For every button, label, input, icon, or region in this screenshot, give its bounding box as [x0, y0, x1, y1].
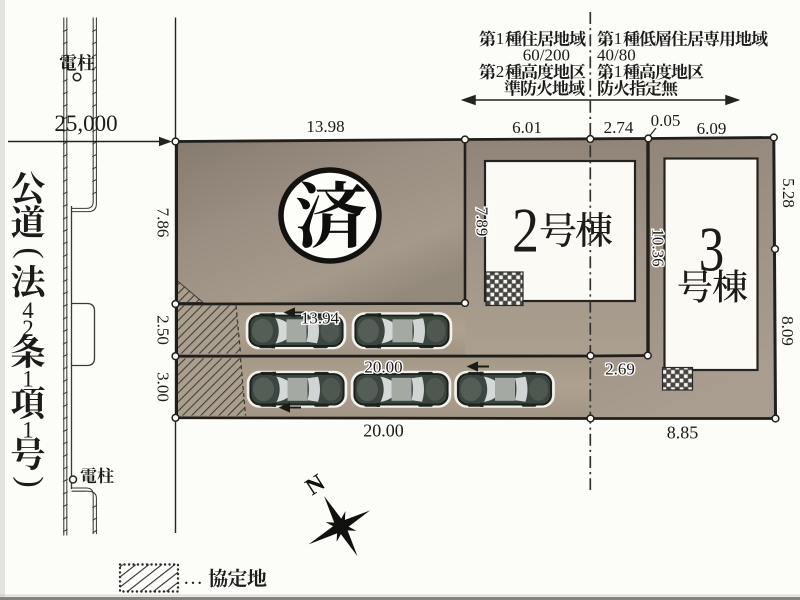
svg-text:25,000: 25,000 [54, 111, 117, 136]
svg-text:8.85: 8.85 [667, 423, 699, 443]
svg-text:13.98: 13.98 [306, 117, 344, 136]
svg-text:6.01: 6.01 [512, 118, 542, 137]
svg-text:): ) [12, 476, 49, 487]
svg-text:0.05: 0.05 [651, 111, 681, 130]
svg-text:1: 1 [22, 418, 34, 443]
svg-text:2.69: 2.69 [605, 360, 635, 379]
svg-text:2.50: 2.50 [154, 315, 173, 345]
svg-text:1: 1 [496, 29, 505, 48]
svg-text:60/200: 60/200 [523, 46, 570, 65]
svg-text:…: … [183, 567, 203, 589]
svg-text:2: 2 [496, 62, 505, 81]
svg-text:20.00: 20.00 [363, 421, 404, 441]
svg-text:13.94: 13.94 [301, 309, 340, 328]
svg-text:3.00: 3.00 [154, 372, 173, 402]
svg-text:10.36: 10.36 [649, 228, 668, 266]
svg-text:7.89: 7.89 [473, 207, 492, 237]
svg-text:(: ( [12, 247, 49, 258]
svg-text:20.00: 20.00 [364, 358, 402, 377]
svg-text:7.86: 7.86 [154, 208, 173, 238]
svg-text:2.74: 2.74 [604, 118, 634, 137]
svg-text:1: 1 [614, 62, 623, 81]
svg-text:2: 2 [512, 194, 539, 265]
svg-text:5.28: 5.28 [779, 178, 798, 208]
svg-text:1: 1 [22, 367, 34, 392]
svg-text:6.09: 6.09 [697, 119, 727, 138]
svg-text:8.09: 8.09 [778, 316, 797, 346]
